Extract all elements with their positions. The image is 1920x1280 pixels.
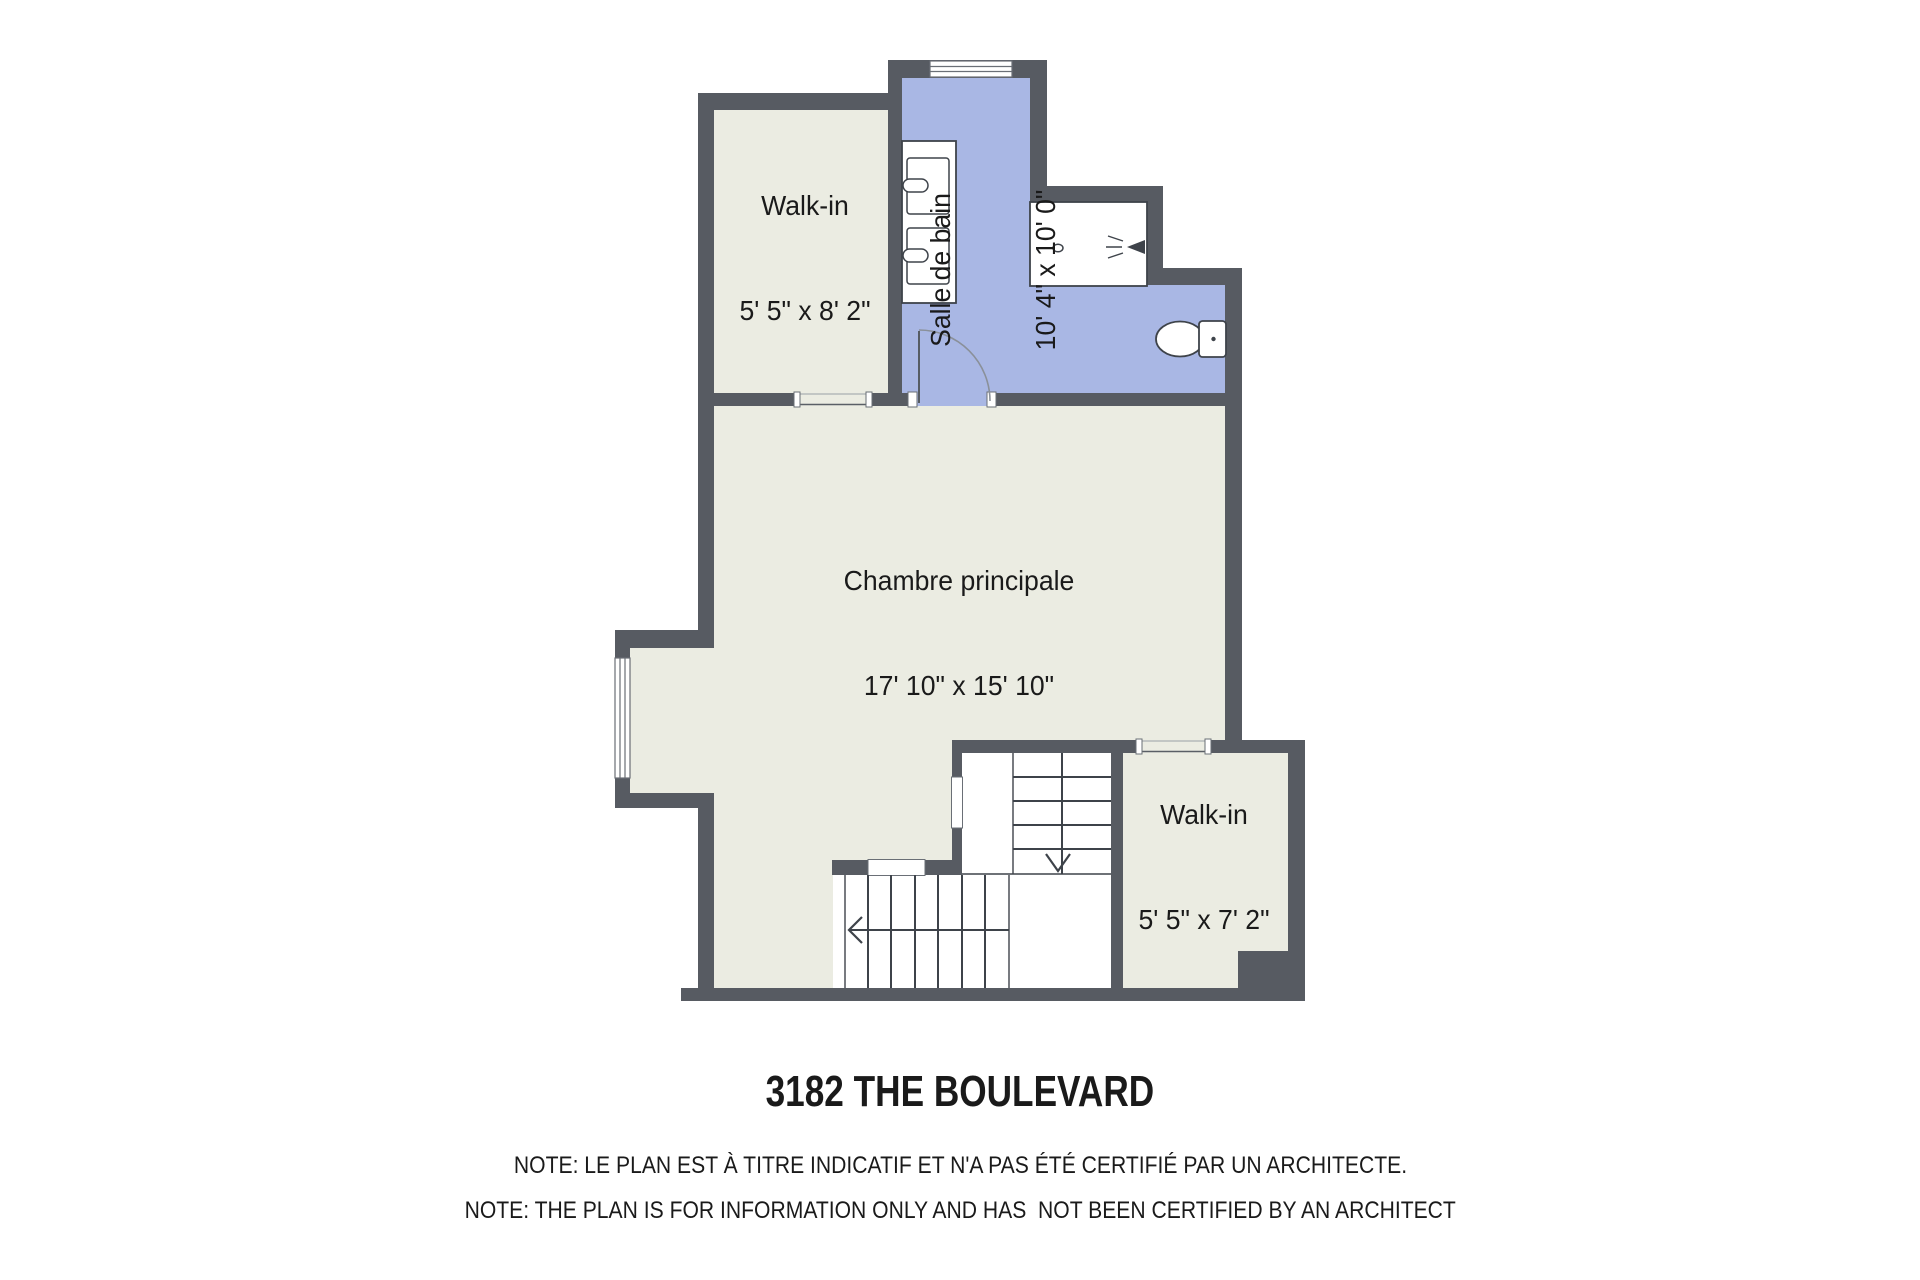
door-jamb <box>908 392 917 407</box>
stair-opening <box>868 860 925 876</box>
room-name: Salle de bain <box>923 190 958 351</box>
bedroom-window <box>615 658 630 778</box>
door-jamb <box>987 392 996 407</box>
toilet-flush-dot <box>1211 337 1215 341</box>
room-name: Walk-in <box>1138 797 1269 832</box>
wall-segment <box>615 778 630 794</box>
note-french-text: NOTE: LE PLAN EST À TITRE INDICATIF ET N… <box>513 1152 1406 1180</box>
room-name: Chambre principale <box>844 563 1075 598</box>
room-label-walkin-top: Walk-in 5' 5" x 8' 2" <box>739 118 870 398</box>
room-dims: 5' 5" x 7' 2" <box>1138 902 1269 937</box>
note-english-text: NOTE: THE PLAN IS FOR INFORMATION ONLY A… <box>464 1197 1455 1225</box>
plan-title: 3182 THE BOULEVARD <box>0 1069 1920 1115</box>
wall-segment <box>1225 285 1242 753</box>
wall-segment <box>1030 78 1047 186</box>
floor-plan-page: Walk-in 5' 5" x 8' 2" Salle de bain 10' … <box>0 0 1920 1280</box>
wall-segment <box>615 648 630 658</box>
note-english: NOTE: THE PLAN IS FOR INFORMATION ONLY A… <box>0 1197 1920 1225</box>
room-name: Walk-in <box>739 188 870 223</box>
bedroom-entry-opening <box>952 777 963 828</box>
wall-segment <box>698 93 902 110</box>
master-bedroom-alcove-floor <box>714 860 833 988</box>
room-dims: 10' 4" x 10' 0" <box>1028 190 1063 351</box>
wall-segment <box>698 808 714 988</box>
window-bay-floor <box>630 648 714 793</box>
bathroom-window <box>930 61 1012 77</box>
wall-segment <box>615 630 714 648</box>
room-label-walkin-bottom: Walk-in 5' 5" x 7' 2" <box>1138 727 1269 1007</box>
wall-segment <box>615 793 714 808</box>
room-dims: 5' 5" x 8' 2" <box>739 293 870 328</box>
toilet-bowl-icon <box>1156 322 1204 357</box>
wall-segment <box>1147 202 1163 268</box>
room-label-bedroom: Chambre principale 17' 10" x 15' 10" <box>844 493 1075 773</box>
room-dims: 17' 10" x 15' 10" <box>844 668 1075 703</box>
wall-segment <box>1111 753 1123 988</box>
note-french: NOTE: LE PLAN EST À TITRE INDICATIF ET N… <box>0 1152 1920 1180</box>
wall-segment <box>698 93 714 632</box>
wall-segment <box>1288 740 1305 1001</box>
room-label-bathroom: Salle de bain 10' 4" x 10' 0" <box>853 190 1133 351</box>
plan-title-text: 3182 THE BOULEVARD <box>766 1069 1155 1115</box>
bathroom-doorway <box>917 393 987 406</box>
wall-segment <box>1147 268 1242 285</box>
